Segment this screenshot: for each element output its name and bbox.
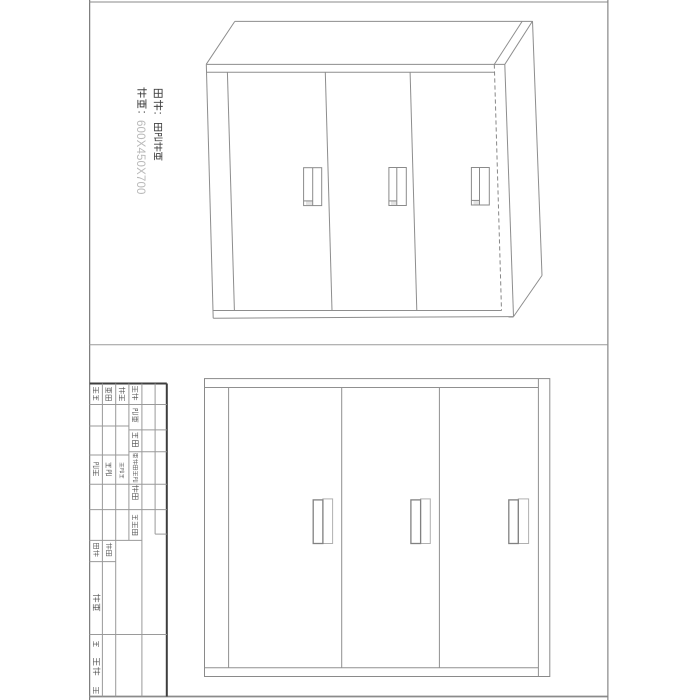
svg-text::: : bbox=[135, 111, 147, 114]
svg-text:600X450X700: 600X450X700 bbox=[134, 120, 146, 194]
svg-text::: : bbox=[152, 112, 164, 115]
